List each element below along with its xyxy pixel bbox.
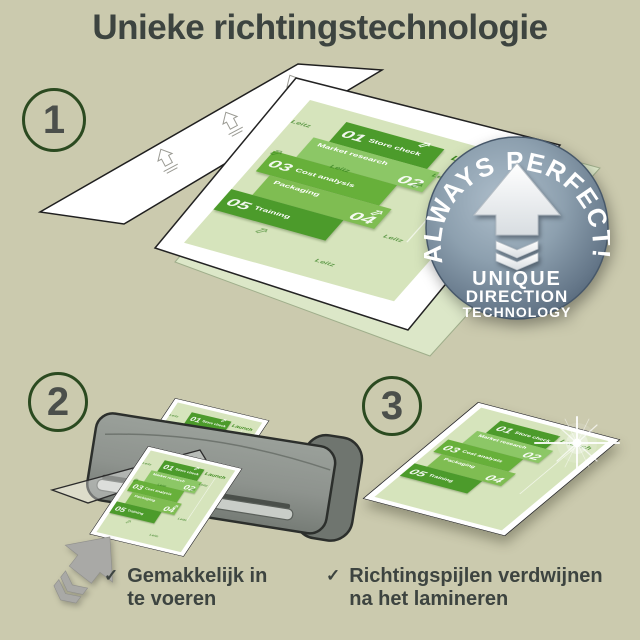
brand-watermark: Leitz [149,534,159,539]
brand-watermark: Leitz [169,414,179,419]
doc-step-label: Cost analysis [171,439,199,448]
brand-watermark: Leitz [142,462,152,467]
doc-step-label: Training [126,509,144,516]
brand-watermark: Leitz [198,483,208,488]
launch-label: Launch [231,423,254,432]
check-icon: ✓ [326,565,340,611]
bullet-arrows-disappear: ✓ Richtingspijlen verdwijnen na het lami… [326,565,603,611]
brand-watermark: Leitz [381,235,404,244]
step-3-circle: 3 [362,376,422,436]
doc-step-number: 04 [482,474,506,485]
brand-watermark: Leitz [177,518,187,523]
check-icon: ✓ [104,565,118,611]
step-2-number: 2 [47,382,69,422]
brand-watermark: Leitz [225,435,235,440]
direction-arrow-watermark-icon: ⇧ [123,519,133,525]
laminator-end-cap [292,432,366,544]
bullet-easy-feed-text: Gemakkelijk in te voeren [127,565,267,611]
doc-step-number: 01 [339,128,369,144]
direction-arrow-watermark-icon: ⇧ [249,226,271,236]
doc-step-label: Packaging [134,495,156,503]
direction-arrow-watermark-icon: ⇧ [170,504,180,510]
doc-step-label: Training [252,206,292,221]
badge-line3: TECHNOLOGY [463,304,572,320]
bullet-arrows-disappear-text: Richtingspijlen verdwijnen na het lamine… [349,565,602,611]
launch-label: Launch [558,438,594,451]
page-title: Unieke richtingstechnologie [0,8,640,48]
doc-step-label: Training [427,474,455,484]
document-page: 01Store checkMarket research0203Cost ana… [96,451,235,553]
step-1-circle: 1 [22,88,86,152]
always-perfect-badge: ALWAYS PERFECT! UNIQUE DIRECTION TECHNOL… [424,135,610,321]
doc-step-number: 03 [265,158,295,174]
brand-watermark: Leitz [313,258,336,267]
step-2-circle: 2 [28,372,88,432]
bullet-easy-feed: ✓ Gemakkelijk in te voeren [104,565,267,611]
brand-watermark: Leitz [289,120,312,129]
launch-label: Launch [204,471,227,480]
document-exiting-laminator: 01Store checkMarket research0203Cost ana… [89,446,242,557]
infographic-canvas: Unieke richtingstechnologie 01Store chec… [0,0,640,640]
doc-step-number: 02 [519,451,543,462]
step-3-number: 3 [381,386,403,426]
step-1-number: 1 [43,100,65,140]
doc-step-number: 05 [224,196,254,212]
doc-step-label: Cost analysis [144,487,172,496]
